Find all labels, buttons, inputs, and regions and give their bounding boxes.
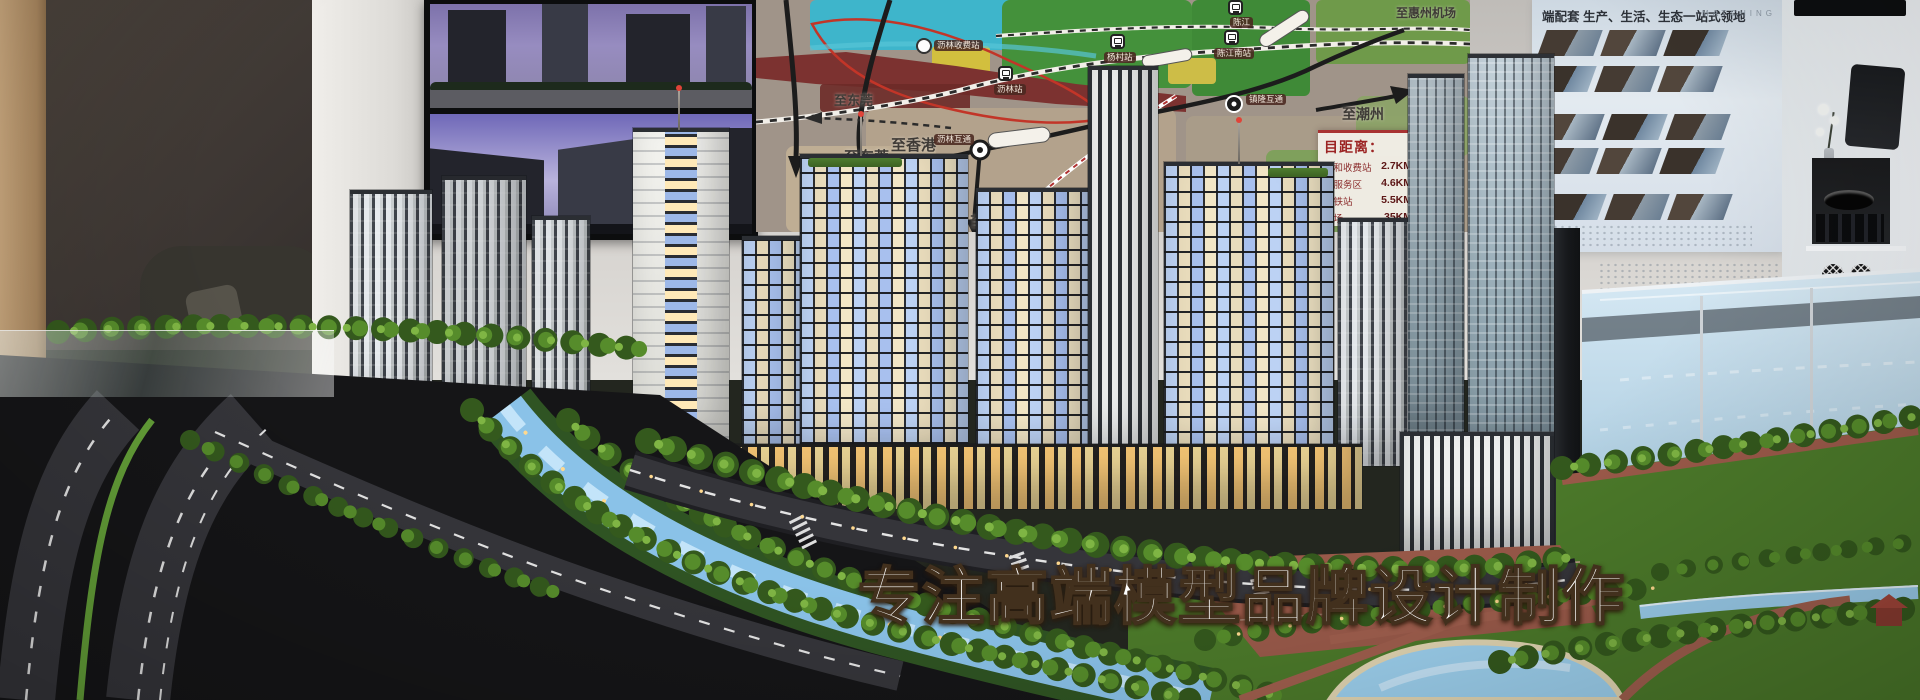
slogan-overlay: 专注高端模型品牌设计制作 (858, 546, 1648, 636)
showroom-photo: 至东莞 至东莞 至香港 至深圳 至潮州 至惠州机场 沥林收费站 沥林站 杨村站 … (0, 0, 1920, 700)
